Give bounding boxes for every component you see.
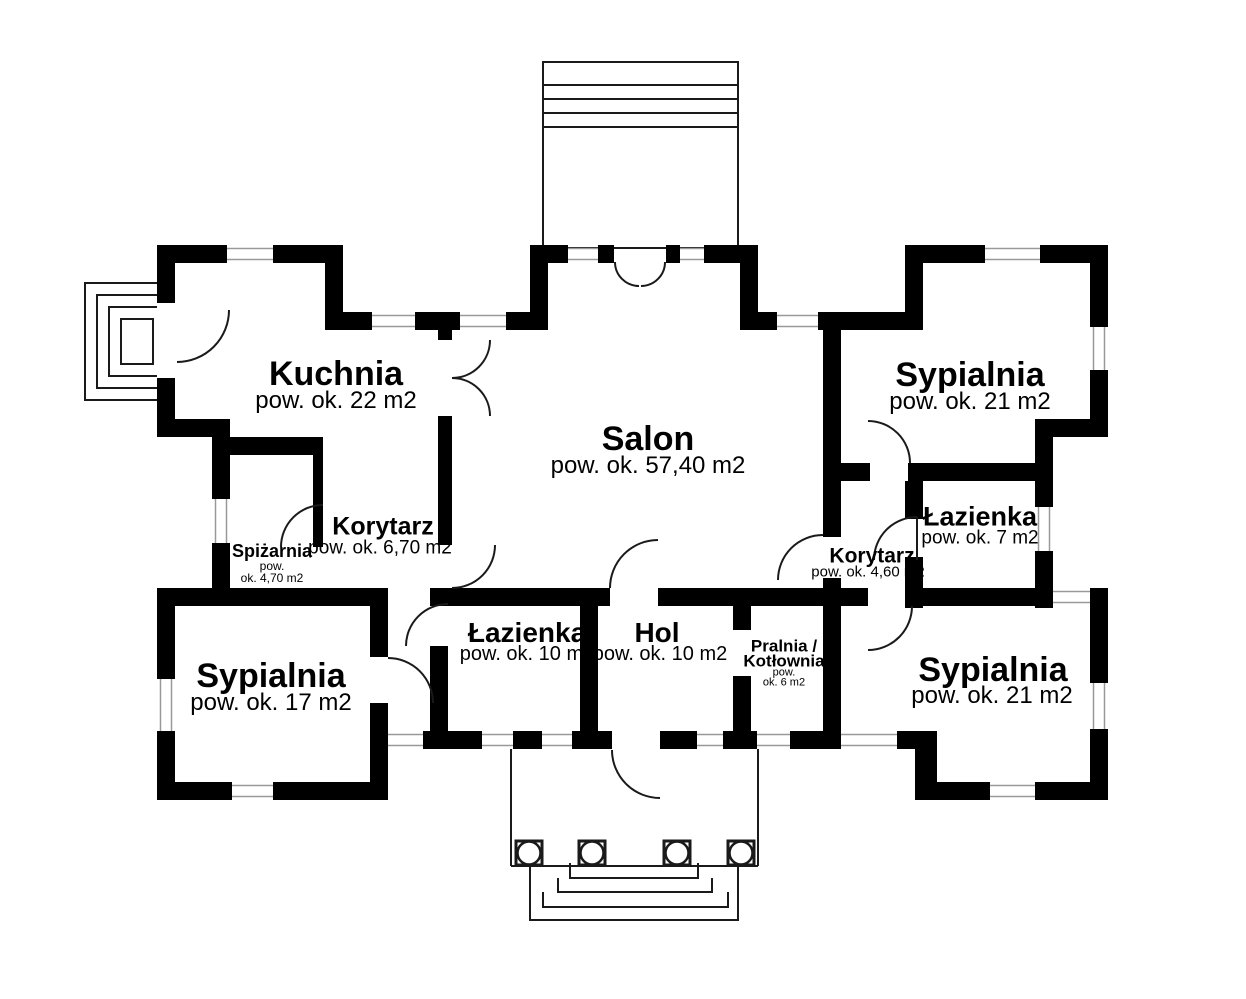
room-label-lazienka-right: Łazienka [923, 504, 1037, 531]
room-area-lazienka-bottom: pow. ok. 10 m2 [460, 644, 595, 664]
door-bedroom-top-right [868, 421, 910, 463]
door-bathroom-bottom [406, 604, 448, 646]
side-steps [85, 283, 157, 400]
room-area-korytarz-right: pow. ok. 4,60 m2 [811, 565, 924, 580]
porch-columns [516, 841, 754, 865]
room-area-salon: pow. ok. 57,40 m2 [551, 454, 746, 478]
room-area-sypialnia-left: pow. ok. 17 m2 [190, 691, 351, 715]
room-label-sypialnia-top-right: Sypialnia [895, 358, 1044, 392]
floor-plan-canvas: Kuchnia pow. ok. 22 m2 Salon pow. ok. 57… [0, 0, 1246, 999]
room-area-lazienka-right: pow. ok. 7 m2 [921, 529, 1038, 548]
door-main-entry [612, 750, 660, 798]
door-kitchen-salon-double [452, 340, 490, 416]
room-area-sypialnia-top-right: pow. ok. 21 m2 [889, 390, 1050, 414]
room-label-sypialnia-left: Sypialnia [196, 659, 345, 693]
door-terrace-double [615, 262, 665, 286]
terrace-outline [543, 62, 738, 248]
door-bedroom-left [388, 658, 433, 703]
door-kitchen-side-entry [177, 310, 229, 362]
door-salon-hall [610, 540, 658, 588]
room-label-spizarnia: Spiżarnia [232, 542, 312, 560]
room-area-spizarnia-line2: ok. 4,70 m2 [241, 572, 304, 584]
door-corridor-salon-left [452, 545, 495, 588]
room-label-kuchnia: Kuchnia [269, 357, 403, 391]
room-label-salon: Salon [602, 422, 695, 456]
floor-plan-drawing [0, 0, 1246, 999]
entry-porch [511, 749, 758, 920]
room-area-hol: pow. ok. 10 m2 [593, 644, 728, 664]
room-area-pralnia-line2: ok. 6 m2 [763, 678, 805, 689]
door-bedroom-bottom-right [868, 606, 912, 650]
room-area-sypialnia-bottom-right: pow. ok. 21 m2 [911, 684, 1072, 708]
room-area-korytarz-left: pow. ok. 6,70 m2 [308, 539, 452, 558]
door-arcs [177, 262, 917, 798]
room-area-kuchnia: pow. ok. 22 m2 [255, 389, 416, 413]
room-label-korytarz-left: Korytarz [332, 515, 433, 540]
